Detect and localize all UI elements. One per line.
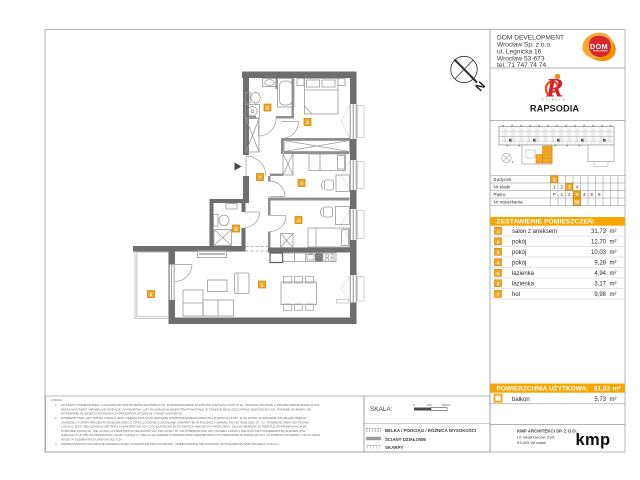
svg-text:10,03: 10,03 xyxy=(591,250,607,256)
svg-text:30: 30 xyxy=(574,200,580,205)
svg-text:4: 4 xyxy=(497,260,500,265)
svg-text:Budynek: Budynek xyxy=(494,177,513,182)
svg-text:POZIOMIE PODŁOGI, NIE LICZĄC L: POZIOMIE PODŁOGI, NIE LICZĄC LISTEW PRZY… xyxy=(61,428,305,433)
svg-text:1.: 1. xyxy=(55,403,58,407)
svg-text:Nr klatki: Nr klatki xyxy=(494,185,511,190)
svg-text:m²: m² xyxy=(610,250,617,256)
svg-text:DOM DEVELOPMENT: DOM DEVELOPMENT xyxy=(497,35,564,42)
svg-text:5: 5 xyxy=(591,192,594,197)
svg-text:WYMIARAMI W ŚWIETLE PIONOWYCH: WYMIARAMI W ŚWIETLE PIONOWYCH PRZEGRÓD (… xyxy=(61,411,182,416)
svg-text:SKARPY: SKARPY xyxy=(385,445,403,450)
svg-text:m²: m² xyxy=(610,240,617,246)
svg-text:Piętro: Piętro xyxy=(494,192,506,197)
svg-text:2: 2 xyxy=(306,120,309,125)
svg-text:Wrocław Sp. z o.o.: Wrocław Sp. z o.o. xyxy=(497,42,552,49)
svg-text:3: 3 xyxy=(576,192,579,197)
svg-text:hol: hol xyxy=(512,292,520,298)
svg-text:DEVELOPMENT: DEVELOPMENT xyxy=(593,51,608,53)
svg-text:POWIERZCHNIA UŻYTKOWA LOKALU J: POWIERZCHNIA UŻYTKOWA LOKALU JEST OKREŚL… xyxy=(61,415,307,420)
svg-text:NADAJĄCYCH SIĘ DO DEMONTAŻU (R: NADAJĄCYCH SIĘ DO DEMONTAŻU (RURY, KANAŁ… xyxy=(61,432,320,437)
svg-text:łazienka: łazienka xyxy=(512,271,535,277)
svg-text:DOM: DOM xyxy=(590,42,608,51)
svg-text:7: 7 xyxy=(497,292,500,297)
svg-text:m²: m² xyxy=(613,385,622,392)
svg-text:81,83: 81,83 xyxy=(594,385,611,392)
svg-text:łazienka: łazienka xyxy=(512,282,535,288)
svg-text:31,73: 31,73 xyxy=(591,229,607,235)
svg-text:5: 5 xyxy=(497,271,500,276)
svg-text:KMP ARCHITEKCI SP. Z O.O.: KMP ARCHITEKCI SP. Z O.O. xyxy=(517,429,577,434)
svg-text:4: 4 xyxy=(583,192,586,197)
svg-text:2: 2 xyxy=(497,239,500,244)
svg-text:MOGĄ WYSTĄPIĆ NIEWIELKIE RÓŻNI: MOGĄ WYSTĄPIĆ NIEWIELKIE RÓŻNICE, WYMIAR… xyxy=(61,406,312,411)
svg-text:m²: m² xyxy=(610,292,617,298)
svg-text:3: 3 xyxy=(568,185,571,190)
svg-text:1: 1 xyxy=(553,185,556,190)
svg-text:4: 4 xyxy=(297,218,300,223)
svg-text:Nr mieszkania: Nr mieszkania xyxy=(494,200,524,205)
svg-text:8: 8 xyxy=(150,292,153,297)
svg-text:6: 6 xyxy=(598,192,601,197)
svg-text:3: 3 xyxy=(553,177,556,182)
svg-text:3: 3 xyxy=(300,181,303,186)
svg-text:BELKA / PODCIĄG / RÓŻNICA WYSO: BELKA / PODCIĄG / RÓŻNICA WYSOKOŚCI xyxy=(385,428,476,433)
svg-text:tel. 71 747 74 74: tel. 71 747 74 74 xyxy=(497,62,546,69)
svg-text:WYMIARY POMIESZCZEŃ, LOKALIZAC: WYMIARY POMIESZCZEŃ, LOKALIZACJĘ PRZYBOR… xyxy=(61,402,320,407)
svg-text:Ul. Skarbowców 31/6: Ul. Skarbowców 31/6 xyxy=(517,435,555,440)
svg-text:ZESTAWIENIE POMIESZCZEŃ:: ZESTAWIENIE POMIESZCZEŃ: xyxy=(497,217,596,226)
svg-text:3: 3 xyxy=(497,250,500,255)
svg-text:4: 4 xyxy=(576,185,579,190)
svg-text:2: 2 xyxy=(568,192,571,197)
svg-text:ul. Legnicka 16: ul. Legnicka 16 xyxy=(497,49,542,56)
svg-text:9,28: 9,28 xyxy=(594,261,606,267)
svg-text:LOKALU JEST OBLICZANA W METRAC: LOKALU JEST OBLICZANA W METRACH KWADRATO… xyxy=(61,424,308,429)
svg-text:PRZEDSTAWIONA NA RZUCIE ARANŻA: PRZEDSTAWIONA NA RZUCIE ARANŻACJA MA CHA… xyxy=(61,441,280,446)
svg-text:RAPSODIA: RAPSODIA xyxy=(530,103,580,113)
svg-text:2.: 2. xyxy=(55,416,58,420)
svg-text:9,98: 9,98 xyxy=(594,292,606,298)
svg-text:5: 5 xyxy=(266,105,269,110)
svg-text:pokój: pokój xyxy=(512,240,526,246)
svg-text:m²: m² xyxy=(610,271,617,277)
svg-text:1: 1 xyxy=(261,282,264,287)
svg-text:3.: 3. xyxy=(55,442,58,446)
svg-text:3,17: 3,17 xyxy=(594,282,606,288)
svg-text:m²: m² xyxy=(610,261,617,267)
svg-text:6: 6 xyxy=(235,226,238,231)
svg-text:12,70: 12,70 xyxy=(591,240,607,246)
svg-text:SKALA:: SKALA: xyxy=(370,406,393,413)
svg-text:kmp: kmp xyxy=(576,431,611,449)
svg-text:OSIEDLE: OSIEDLE xyxy=(542,97,567,101)
svg-text:P: P xyxy=(553,192,556,197)
svg-text:POWIERZCHNIA UŻYTKOWA:: POWIERZCHNIA UŻYTKOWA: xyxy=(497,384,589,392)
svg-text:5,73: 5,73 xyxy=(594,397,606,403)
svg-text:200cm: 200cm xyxy=(442,403,452,407)
svg-text:100: 100 xyxy=(427,403,432,407)
svg-text:balkon: balkon xyxy=(512,397,530,403)
svg-text:53-025 Wrocław: 53-025 Wrocław xyxy=(517,440,546,445)
svg-text:6: 6 xyxy=(497,281,500,286)
svg-text:m²: m² xyxy=(610,397,617,403)
svg-text:7: 7 xyxy=(259,175,262,180)
svg-text:pokój: pokój xyxy=(512,261,526,267)
svg-text:m²: m² xyxy=(610,282,617,288)
svg-text:1: 1 xyxy=(497,229,500,234)
svg-text:pokój: pokój xyxy=(512,250,526,256)
svg-text:ŚCIANY DZIAŁOWE: ŚCIANY DZIAŁOWE xyxy=(385,437,426,442)
svg-text:2: 2 xyxy=(561,185,564,190)
svg-text:ZAKRESU I FORMY PROJEKTU BUDOW: ZAKRESU I FORMY PROJEKTU BUDOWLANEGO ORA… xyxy=(61,419,310,424)
svg-text:salon z aneksem: salon z aneksem xyxy=(512,229,557,235)
svg-text:1: 1 xyxy=(561,192,564,197)
svg-text:m²: m² xyxy=(610,229,617,235)
svg-text:UWAGI:: UWAGI: xyxy=(51,398,62,402)
svg-text:4,94: 4,94 xyxy=(594,271,606,277)
